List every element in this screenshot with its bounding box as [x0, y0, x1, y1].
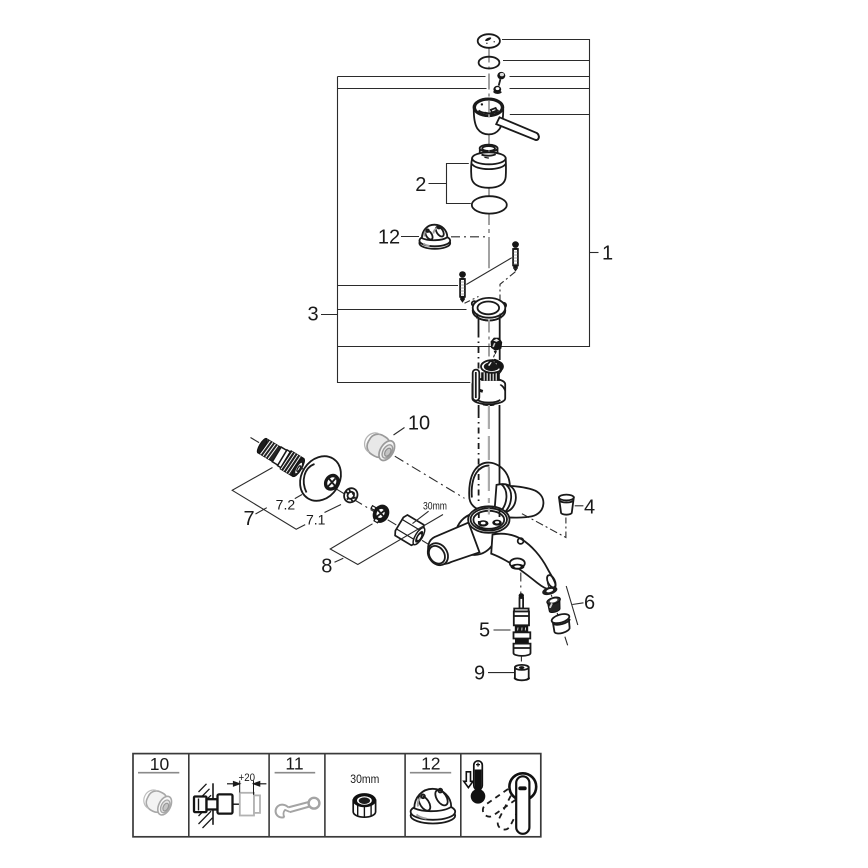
svg-text:10: 10 [408, 413, 430, 435]
svg-text:6: 6 [584, 592, 595, 614]
svg-text:7.1: 7.1 [306, 512, 326, 528]
svg-text:11: 11 [285, 754, 303, 774]
svg-text:1: 1 [602, 243, 613, 265]
svg-text:+20: +20 [239, 772, 256, 784]
svg-text:12: 12 [421, 754, 440, 774]
svg-text:4: 4 [584, 497, 595, 519]
svg-text:9: 9 [474, 663, 485, 685]
svg-text:12: 12 [378, 227, 400, 249]
svg-text:7: 7 [243, 508, 254, 530]
svg-text:8: 8 [321, 556, 332, 578]
svg-text:7.2: 7.2 [276, 497, 296, 513]
svg-text:30mm: 30mm [350, 772, 379, 786]
svg-text:30mm: 30mm [423, 501, 447, 513]
svg-text:5: 5 [479, 620, 490, 642]
svg-text:3: 3 [307, 304, 318, 326]
svg-text:10: 10 [150, 754, 170, 774]
svg-text:2: 2 [415, 174, 426, 196]
